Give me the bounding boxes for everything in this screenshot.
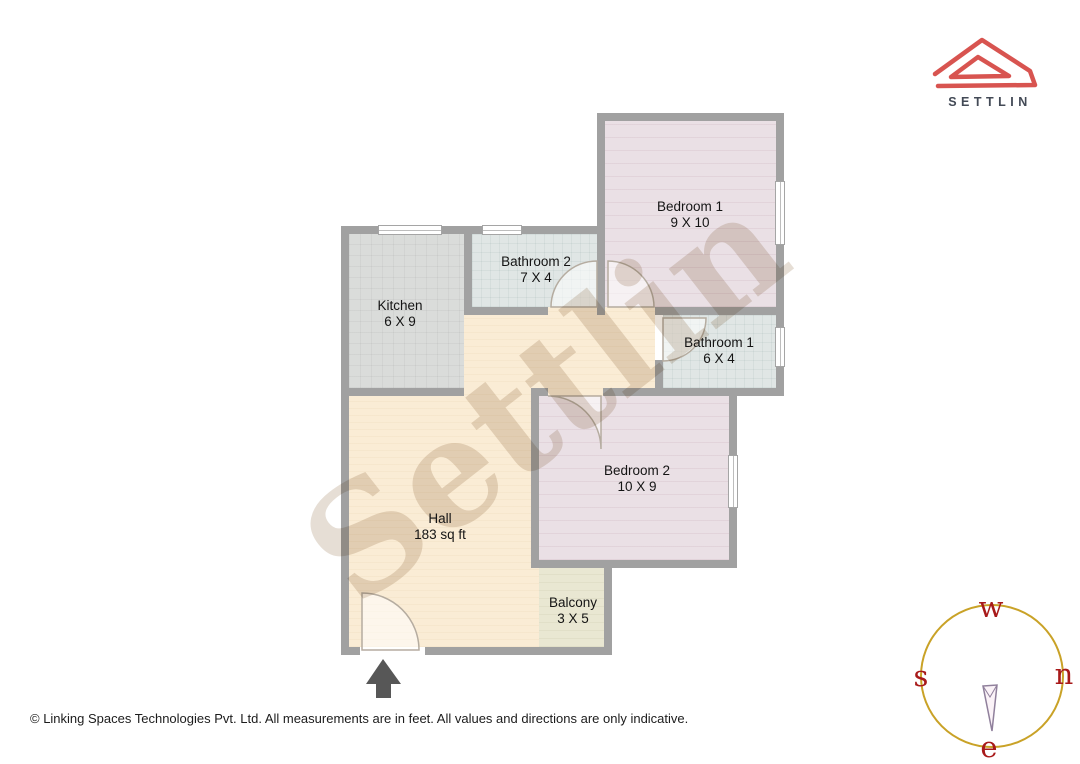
room-name: Bathroom 1 (659, 335, 779, 351)
room-name: Bathroom 2 (466, 254, 606, 270)
label-bathroom1: Bathroom 1 6 X 4 (659, 335, 779, 367)
room-name: Bedroom 1 (600, 199, 780, 215)
label-balcony: Balcony 3 X 5 (513, 595, 633, 627)
room-name: Kitchen (340, 298, 460, 314)
room-dims: 10 X 9 (547, 479, 727, 495)
room-dims: 9 X 10 (600, 215, 780, 231)
room-dims: 3 X 5 (513, 611, 633, 627)
label-hall: Hall 183 sq ft (370, 511, 510, 543)
room-dims: 7 X 4 (466, 270, 606, 286)
label-bedroom2: Bedroom 2 10 X 9 (547, 463, 727, 495)
label-kitchen: Kitchen 6 X 9 (340, 298, 460, 330)
room-dims: 183 sq ft (370, 527, 510, 543)
room-name: Bedroom 2 (547, 463, 727, 479)
room-name: Balcony (513, 595, 633, 611)
door-arcs (0, 0, 1080, 764)
room-name: Hall (370, 511, 510, 527)
room-dims: 6 X 4 (659, 351, 779, 367)
room-dims: 6 X 9 (340, 314, 460, 330)
label-bathroom2: Bathroom 2 7 X 4 (466, 254, 606, 286)
door-entry (362, 593, 419, 650)
door-bedroom2 (548, 396, 601, 449)
door-bedroom1 (608, 261, 654, 307)
label-bedroom1: Bedroom 1 9 X 10 (600, 199, 780, 231)
floor-plan-page: Settlin Bedroom 1 9 X 10 Bathroom 2 7 X … (0, 0, 1080, 764)
